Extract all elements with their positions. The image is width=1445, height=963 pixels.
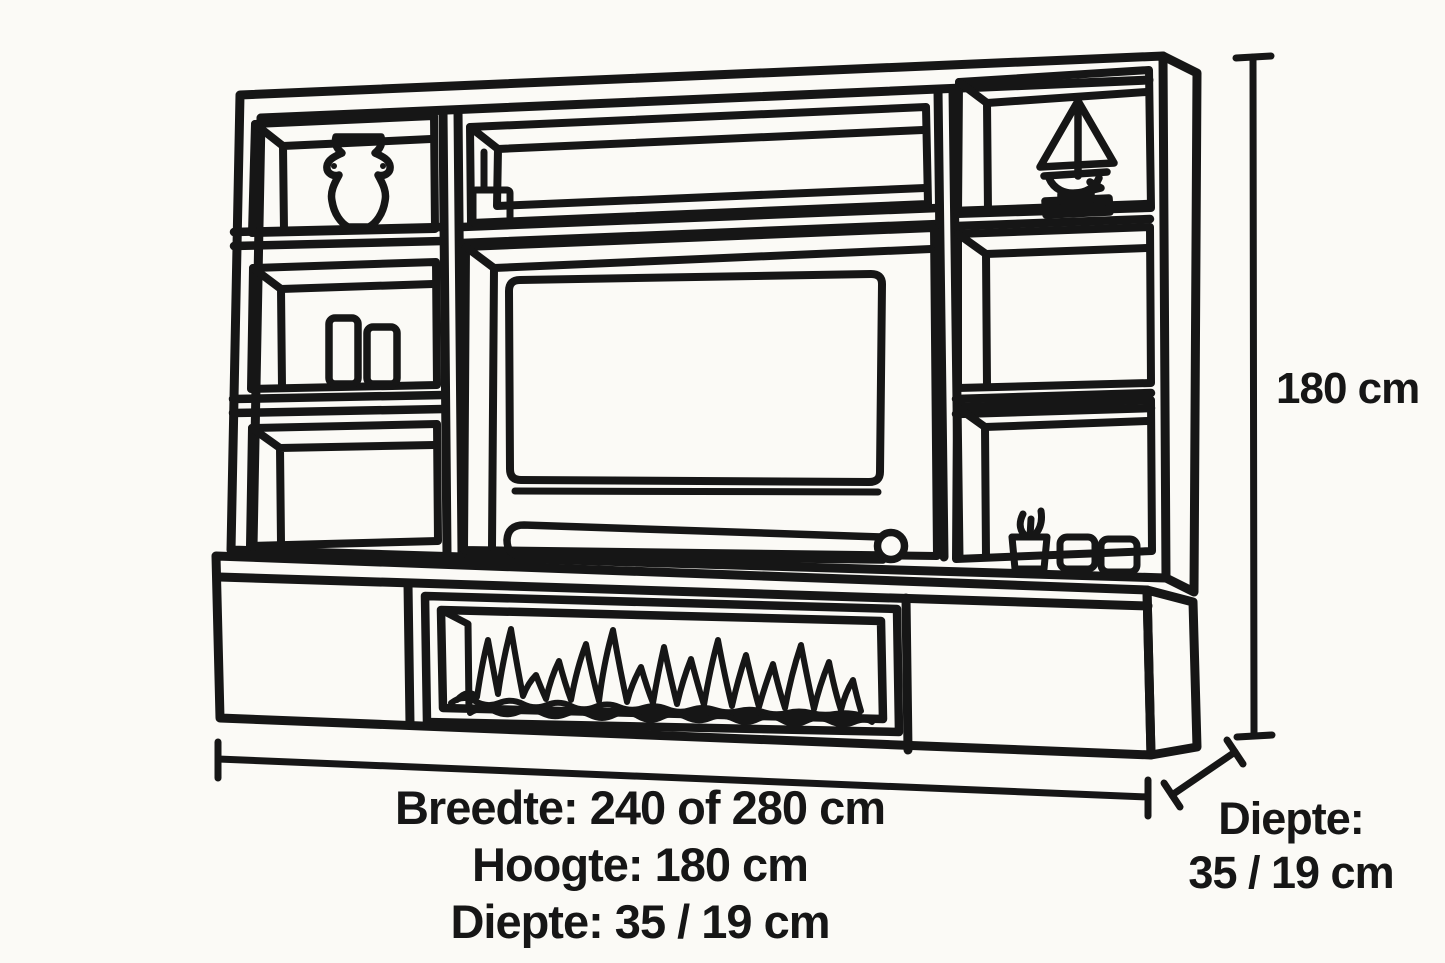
cubby-mid-right — [958, 227, 1151, 388]
storage-box-icon — [473, 152, 510, 224]
cubby-top-center — [470, 107, 928, 223]
dimension-diagram: Breedte: 240 of 280 cm Hoogte: 180 cm Di… — [0, 0, 1445, 963]
hoogte-label: Hoogte: 180 cm — [250, 836, 1030, 893]
width-label: Breedte: 240 of 280 cm — [250, 779, 1030, 836]
bottom-dimension-labels: Breedte: 240 of 280 cm Hoogte: 180 cm Di… — [250, 779, 1030, 950]
depth-side-label-title: Diepte: — [1136, 792, 1445, 846]
tv-screen — [509, 274, 882, 482]
height-label: 180 cm — [1276, 366, 1419, 412]
diepte-label: Diepte: 35 / 19 cm — [250, 893, 1030, 950]
cubby-bottom-right — [956, 400, 1152, 559]
height-dimension-line — [1236, 56, 1272, 737]
flames-outline — [457, 629, 861, 711]
plant-pot-icon — [1012, 511, 1047, 569]
divider-left — [443, 110, 462, 554]
sailboat-icon — [1040, 101, 1114, 215]
base-divider-right — [906, 598, 908, 750]
shelf-cubbies — [250, 70, 1152, 559]
tv-icon — [509, 274, 882, 492]
books-icon — [329, 318, 397, 384]
depth-side-label-value: 35 / 19 cm — [1136, 846, 1445, 900]
base-divider-left — [408, 584, 410, 724]
cubby-mid-left — [251, 262, 437, 389]
depth-side-labels: Diepte: 35 / 19 cm — [1136, 792, 1445, 900]
soundbar-end-cap — [878, 533, 905, 560]
tv-bottom-bezel — [515, 491, 878, 492]
base-right-side-panel — [1147, 590, 1197, 755]
vase-icon — [327, 137, 390, 227]
cubby-bottom-left — [250, 424, 438, 546]
